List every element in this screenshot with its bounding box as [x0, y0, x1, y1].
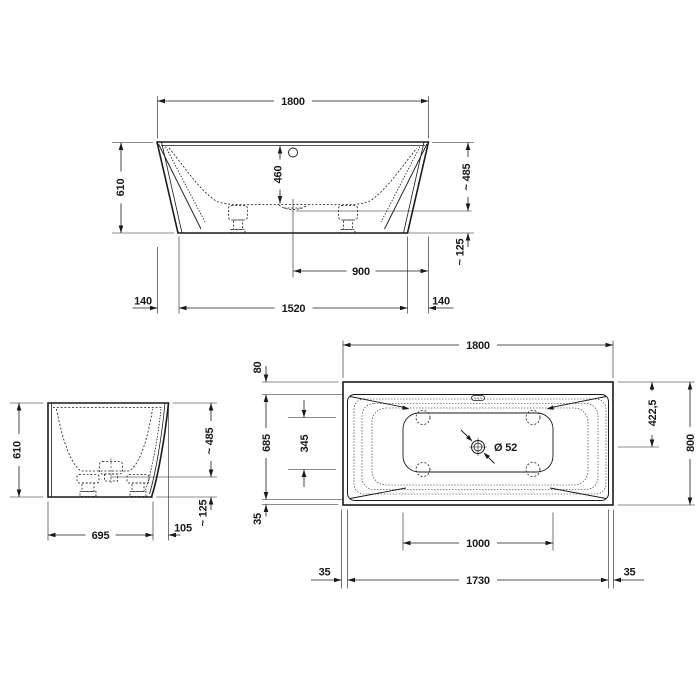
side-foot-back	[127, 475, 149, 484]
plan-dimensions: 1800 80 685 345 35 422,5 800	[252, 339, 697, 589]
dim-side-height: 610	[11, 441, 23, 459]
front-foot-right	[339, 206, 358, 221]
dim-plan-rim-back: 80	[252, 362, 264, 374]
dim-front-height: 610	[115, 179, 127, 197]
overflow-hole-front	[289, 148, 298, 157]
dim-side-overhang: 105	[174, 522, 192, 534]
dim-plan-basin-width: 685	[261, 434, 273, 452]
dim-plan-feet-spacing: 345	[299, 435, 311, 453]
dim-front-outlet-to-floor: ~ 125	[454, 239, 466, 266]
dim-plan-outlet-from-back: 422,5	[647, 400, 659, 427]
dim-side-base-depth: 695	[92, 530, 110, 542]
dim-plan-length-inner: 1730	[466, 575, 490, 587]
side-drain-detail	[100, 459, 123, 484]
dim-plan-rim-front: 35	[252, 513, 264, 525]
dim-plan-floor-length: 1000	[466, 538, 490, 550]
dim-plan-rim-left: 35	[319, 566, 331, 578]
dim-front-width-top: 1800	[281, 96, 305, 108]
dim-side-rim-to-outlet: ~ 485	[204, 428, 216, 455]
dim-plan-depth: 800	[685, 434, 697, 452]
side-foot-front	[77, 475, 99, 484]
dim-drain-diameter: Ø 52	[494, 442, 517, 454]
bathtub-front-outline	[157, 142, 472, 278]
side-dimensions: 610 ~ 485 ~ 125 695 105	[10, 403, 217, 542]
dim-plan-rim-right: 35	[624, 566, 636, 578]
dim-side-outlet-to-floor: ~ 125	[197, 500, 209, 527]
dim-plan-width-top: 1800	[466, 340, 490, 352]
dim-front-rim-to-outlet: ~ 485	[461, 164, 473, 191]
dim-front-offset-left: 140	[134, 295, 152, 307]
bathtub-technical-drawing: 1800 610 460 ~ 485 ~ 125 900 1520 140 14…	[0, 0, 700, 700]
dim-front-inner-depth: 460	[272, 166, 284, 184]
overflow-slot-plan	[472, 396, 485, 401]
foot-circle-bottom-left	[416, 463, 430, 477]
technical-drawing-page: 1800 610 460 ~ 485 ~ 125 900 1520 140 14…	[0, 0, 700, 700]
front-elevation-view: 1800 610 460 ~ 485 ~ 125 900 1520 140 14…	[112, 95, 474, 315]
dim-front-width-bottom: 1520	[282, 303, 306, 315]
front-foot-left	[229, 206, 248, 221]
foot-circle-bottom-right	[526, 463, 540, 477]
dim-front-offset-right: 140	[432, 295, 450, 307]
dim-front-center-to-right: 900	[352, 266, 370, 278]
plan-view: Ø 52	[252, 339, 697, 589]
side-feet	[77, 475, 149, 497]
side-elevation-view: 610 ~ 485 ~ 125 695 105	[10, 403, 217, 542]
plan-drain: Ø 52	[461, 430, 517, 464]
